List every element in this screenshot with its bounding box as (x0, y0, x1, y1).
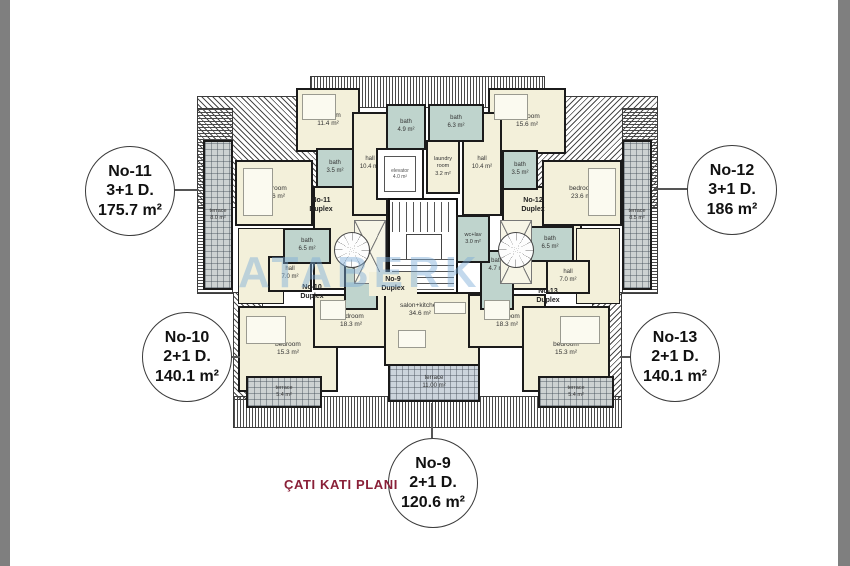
duplex-label-no10: No-10 Duplex (286, 280, 338, 304)
room-bath-6-5-left: bath 6.5 m² (283, 228, 331, 264)
room-label-group: bath 4.9 m² (397, 119, 414, 135)
room-area: 3.0 m² (465, 239, 482, 246)
room-area: 4.0 m² (391, 174, 409, 181)
room-label: bath (326, 160, 343, 168)
room-area: 8.0 m² (209, 215, 226, 222)
room-area: 6.3 m² (447, 123, 464, 131)
elevator-shaft: elevator 4.0 m² (376, 148, 424, 200)
duplex-word: Duplex (521, 205, 544, 214)
callout-area: 140.1 m² (155, 367, 219, 387)
room-label: bath (511, 162, 528, 170)
room-area: 3.5 m² (326, 168, 343, 176)
terrace-8-5: terrace 8.5 m² (622, 140, 652, 290)
duplex-name: No-11 (311, 196, 330, 205)
room-bath-3-5-right: bath 3.5 m² (502, 150, 538, 190)
callout-type: 2+1 D. (409, 473, 457, 493)
furniture-bed (494, 94, 528, 120)
callout-name: No-12 (710, 161, 754, 181)
stair-treads-upper (392, 202, 454, 232)
room-label-group: bath 3.5 m² (326, 160, 343, 176)
terrace-5-4-right: terrace 5.4 m² (538, 376, 614, 408)
room-area: 15.6 m² (514, 121, 540, 129)
room-area: 10.4 m² (472, 164, 492, 172)
duplex-word: Duplex (381, 284, 404, 293)
room-label: hall (472, 156, 492, 164)
duplex-label-no13: No-13 Duplex (522, 284, 574, 308)
room-label: terrace (209, 208, 226, 215)
furniture-bed (302, 94, 336, 120)
leader-no12 (654, 188, 688, 190)
callout-area: 186 m² (707, 200, 758, 220)
spiral-stair-left (334, 232, 370, 268)
furniture-bed (560, 316, 600, 344)
callout-area: 175.7 m² (98, 201, 162, 221)
furniture-bed (588, 168, 616, 216)
callout-name: No-9 (415, 454, 451, 474)
room-label-group: hall 10.4 m² (472, 156, 492, 172)
room-laundry: laundry room 3.2 m² (426, 140, 460, 194)
room-area: 15.3 m² (553, 349, 579, 357)
callout-no9: No-9 2+1 D. 120.6 m² (388, 438, 478, 528)
callout-type: 2+1 D. (163, 347, 211, 367)
duplex-word: Duplex (309, 205, 332, 214)
room-area: 6.5 m² (541, 244, 558, 252)
furniture-bed (246, 316, 286, 344)
terrace-8-0: terrace 8.0 m² (203, 140, 233, 290)
room-label-group: terrace 5.4 m² (275, 385, 292, 399)
floor-plan-page: bedroom 11.4 m² hall 10.4 m² bedroom 23.… (0, 0, 850, 566)
room-label-group: terrace 5.4 m² (567, 385, 584, 399)
callout-area: 120.6 m² (401, 493, 465, 513)
room-bath-3-5-left: bath 3.5 m² (316, 148, 354, 188)
room-label: wc+lav (465, 232, 482, 239)
room-label: terrace (422, 375, 445, 383)
room-label: terrace (628, 208, 645, 215)
callout-no11: No-11 3+1 D. 175.7 m² (85, 146, 175, 236)
room-label: hall (281, 266, 298, 274)
room-area: 18.3 m² (338, 321, 364, 329)
room-label: bath (447, 115, 464, 123)
leader-no9 (431, 403, 433, 438)
room-area: 6.5 m² (298, 246, 315, 254)
callout-name: No-13 (653, 328, 697, 348)
room-area: 5.4 m² (567, 392, 584, 399)
callout-type: 3+1 D. (106, 181, 154, 201)
room-area: 8.5 m² (628, 215, 645, 222)
viewer-gutter-left (0, 0, 10, 566)
terrace-5-4-left: terrace 5.4 m² (246, 376, 322, 408)
furniture-bed (484, 300, 510, 320)
room-area: 18.3 m² (494, 321, 520, 329)
room-label: bath (298, 238, 315, 246)
room-label-group: bath 6.3 m² (447, 115, 464, 131)
room-label: bath (541, 236, 558, 244)
room-label: terrace (275, 385, 292, 392)
duplex-label-no11: No-11 Duplex (296, 194, 346, 216)
duplex-name: No-12 (523, 196, 542, 205)
room-label-group: bath 6.5 m² (298, 238, 315, 254)
room-area: 5.4 m² (275, 392, 292, 399)
leader-no11 (172, 189, 198, 191)
room-label-group: bath 6.5 m² (541, 236, 558, 252)
furniture-sofa (434, 302, 466, 314)
viewer-gutter-right (838, 0, 850, 566)
room-label-group: hall 7.0 m² (559, 269, 576, 285)
room-area: 3.5 m² (511, 170, 528, 178)
duplex-label-no12: No-12 Duplex (508, 194, 558, 216)
duplex-word: Duplex (536, 296, 559, 305)
room-area: 4.9 m² (397, 127, 414, 135)
room-label-group: terrace 8.0 m² (209, 208, 226, 222)
callout-no12: No-12 3+1 D. 186 m² (687, 145, 777, 235)
plan-title: ÇATI KATI PLANI (284, 477, 398, 492)
room-area: 3.2 m² (428, 171, 458, 178)
room-label: laundry room (428, 156, 458, 170)
room-area: 15.3 m² (275, 349, 301, 357)
duplex-name: No-9 (385, 275, 401, 284)
callout-type: 2+1 D. (651, 347, 699, 367)
callout-no13: No-13 2+1 D. 140.1 m² (630, 312, 720, 402)
room-label-group: bath 3.5 m² (511, 162, 528, 178)
room-bath-4-9: bath 4.9 m² (386, 104, 426, 150)
room-area: 11.00 m² (422, 383, 445, 391)
room-label: bath (397, 119, 414, 127)
room-bath-6-3: bath 6.3 m² (428, 104, 484, 142)
room-label: hall (559, 269, 576, 277)
room-label-group: wc+lav 3.0 m² (465, 232, 482, 246)
terrace-11-0: terrace 11.00 m² (388, 364, 480, 402)
callout-name: No-11 (108, 162, 152, 182)
spiral-stair-right (498, 232, 534, 268)
callout-no10: No-10 2+1 D. 140.1 m² (142, 312, 232, 402)
furniture-table (398, 330, 426, 348)
room-label-group: laundry room 3.2 m² (428, 156, 458, 177)
room-area: 11.4 m² (315, 120, 341, 128)
callout-name: No-10 (165, 328, 209, 348)
duplex-name: No-13 (538, 287, 557, 296)
room-label-group: elevator 4.0 m² (391, 168, 409, 181)
room-label: terrace (567, 385, 584, 392)
room-wc-lav: wc+lav 3.0 m² (456, 215, 490, 263)
duplex-word: Duplex (300, 292, 323, 301)
elevator-cab: elevator 4.0 m² (384, 156, 416, 192)
furniture-bed (243, 168, 273, 216)
room-label-group: terrace 11.00 m² (422, 375, 445, 391)
callout-area: 140.1 m² (643, 367, 707, 387)
room-label-group: terrace 8.5 m² (628, 208, 645, 222)
duplex-label-no9: No-9 Duplex (369, 272, 417, 296)
duplex-name: No-10 (302, 283, 321, 292)
callout-type: 3+1 D. (708, 180, 756, 200)
